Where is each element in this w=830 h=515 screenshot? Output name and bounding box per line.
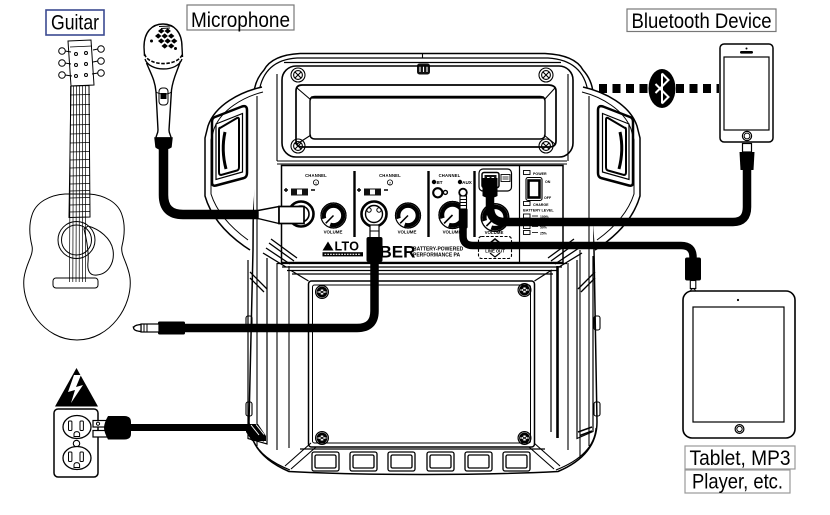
- svg-text:LTO: LTO: [335, 240, 360, 254]
- svg-text:OFF: OFF: [544, 196, 552, 200]
- svg-text:AUX: AUX: [462, 180, 473, 185]
- svg-text:BT: BT: [436, 180, 442, 185]
- svg-text:PERFORMANCE PA: PERFORMANCE PA: [413, 252, 461, 258]
- svg-text:VOLUME: VOLUME: [398, 230, 417, 235]
- svg-text:ON: ON: [545, 180, 551, 184]
- svg-text:Bluetooth Device: Bluetooth Device: [632, 10, 772, 33]
- svg-text:CHANNEL: CHANNEL: [439, 173, 461, 178]
- svg-text:POWER: POWER: [533, 172, 547, 176]
- svg-text:Tablet, MP3: Tablet, MP3: [690, 447, 791, 470]
- svg-text:CHANNEL: CHANNEL: [379, 173, 401, 178]
- svg-text:BATTERY-POWERED: BATTERY-POWERED: [413, 246, 464, 252]
- svg-text:CHANNEL: CHANNEL: [305, 173, 327, 178]
- svg-text:BER: BER: [380, 243, 416, 262]
- svg-text:Guitar: Guitar: [51, 11, 99, 35]
- svg-text:BATTERY LEVEL: BATTERY LEVEL: [523, 209, 554, 213]
- svg-text:CHARGE: CHARGE: [533, 203, 549, 207]
- svg-text:VOLUME: VOLUME: [485, 230, 504, 235]
- svg-text:Player, etc.: Player, etc.: [692, 471, 783, 494]
- svg-text:25%: 25%: [540, 232, 547, 236]
- svg-text:VOLUME: VOLUME: [443, 230, 462, 235]
- svg-text:VOLUME: VOLUME: [324, 230, 343, 235]
- svg-text:Microphone: Microphone: [191, 8, 290, 32]
